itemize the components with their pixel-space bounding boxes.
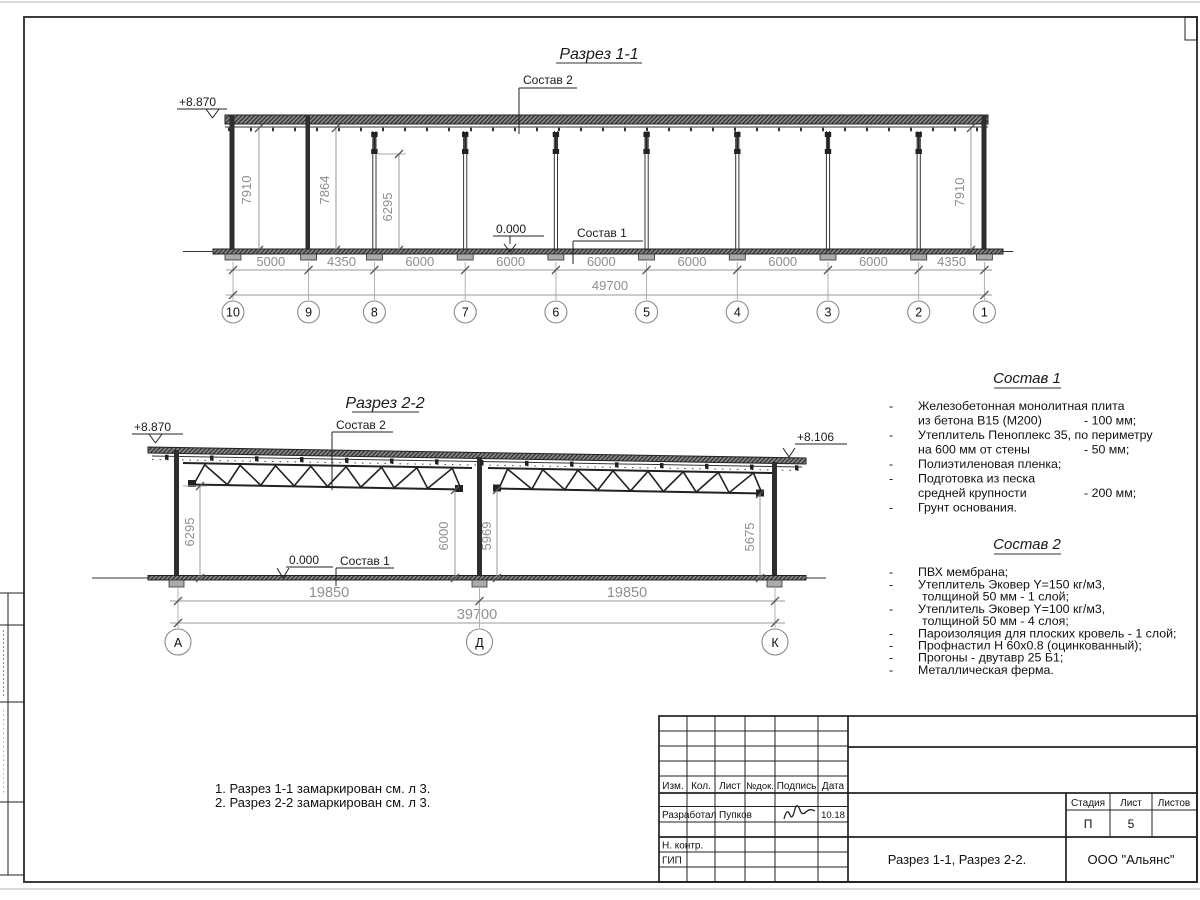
section1-zero-text: 0.000 <box>496 222 526 236</box>
stamp-date: 10.18 <box>821 810 845 821</box>
section1-sostav1-label: Состав 1 <box>577 226 627 240</box>
section2-axes: А Д К <box>165 629 788 655</box>
top-right-stamp-box <box>1185 17 1197 40</box>
stamp-company: ООО "Альянс" <box>1088 852 1175 867</box>
vdim2-6295: 6295 <box>182 518 197 547</box>
section2-zero-mark: 0.000 <box>277 553 333 578</box>
stamp-nkontr-label: Н. контр. <box>662 841 703 852</box>
list-dash: - <box>889 578 893 592</box>
composition-list-2: Состав 2 -ПВХ мембрана;-Утеплитель Экове… <box>889 536 1177 677</box>
list-dash: - <box>889 457 893 471</box>
dim-4350a: 4350 <box>327 254 356 269</box>
signature <box>784 806 815 819</box>
section-2-2: Разрез 2-2 <box>92 395 847 655</box>
vdim-7864: 7864 <box>317 176 332 205</box>
stamp-col-list: Лист <box>719 781 741 792</box>
section2-title: Разрез 2-2 <box>345 395 424 412</box>
list-line: из бетона В15 (М200) <box>918 414 1042 428</box>
axis-D: Д <box>475 636 484 650</box>
section2-elevation-right: +8.106 <box>783 430 847 457</box>
axis-4: 4 <box>734 306 741 320</box>
section2-elev-right-text: +8.106 <box>797 430 834 444</box>
list-dash: - <box>889 602 893 616</box>
section1-dim-chain: 5000 4350 6000 6000 6000 6000 6000 6000 … <box>226 254 992 295</box>
vdim-6295: 6295 <box>380 193 395 222</box>
stamp-gip-label: ГИП <box>662 856 682 867</box>
axis-2: 2 <box>915 306 922 320</box>
axis-K: К <box>771 636 779 650</box>
list-dash: - <box>889 663 893 677</box>
axis-10: 10 <box>226 306 240 320</box>
list-line: Утеплитель Пеноплекс 35, по периметру <box>918 428 1153 442</box>
note-1: 1. Разрез 1-1 замаркирован см. л 3. <box>215 781 430 796</box>
dim-6000c: 6000 <box>587 254 616 269</box>
axis-8: 8 <box>371 306 378 320</box>
section2-columns <box>174 450 777 580</box>
vdim2-5675: 5675 <box>742 523 757 552</box>
section1-elevation-text: +8.870 <box>179 95 216 109</box>
section1-sostav2-leader: Состав 2 <box>519 73 577 134</box>
section2-sostav1-label: Состав 1 <box>340 554 390 568</box>
stamp-sheet-value: 5 <box>1128 817 1135 831</box>
section1-title: Разрез 1-1 <box>559 46 638 63</box>
section1-elevation-mark: +8.870 <box>177 95 227 118</box>
axis-A: А <box>174 636 183 650</box>
left-margin-stamp <box>0 593 24 875</box>
stamp-col-ndok: №док. <box>746 781 774 792</box>
section2-zero-text: 0.000 <box>289 553 319 567</box>
stamp-stage-label: Стадия <box>1071 798 1105 809</box>
list-line: средней крупности <box>918 486 1027 500</box>
section-1-1: Разрез 1-1 +8.870 Состав <box>177 46 1013 323</box>
stamp-sheets-label: Листов <box>1158 798 1191 809</box>
stamp-col-kol: Кол. <box>691 781 711 792</box>
list-line: Грунт основания. <box>918 501 1017 515</box>
vdim2-6000: 6000 <box>436 522 451 551</box>
notes: 1. Разрез 1-1 замаркирован см. л 3. 2. Р… <box>215 781 430 810</box>
list-dash: - <box>889 399 893 413</box>
dim-49700: 49700 <box>592 278 628 293</box>
vdim-7910-right: 7910 <box>952 178 967 207</box>
axis-3: 3 <box>825 306 832 320</box>
list-line: Подготовка из песка <box>918 472 1035 486</box>
stamp-col-podpis: Подпись <box>777 781 817 792</box>
comp1-heading: Состав 1 <box>993 370 1061 387</box>
dim-19850b: 19850 <box>607 585 647 601</box>
section2-floor <box>92 576 826 588</box>
section1-axes: 10 9 8 7 6 5 4 3 2 1 <box>222 301 995 323</box>
axis-1: 1 <box>981 306 988 320</box>
note-2: 2. Разрез 2-2 замаркирован см. л 3. <box>215 795 430 810</box>
list-line: Железобетонная монолитная плита <box>918 399 1125 413</box>
title-block: Изм. Кол. Лист №док. Подпись Дата Разраб… <box>659 716 1197 882</box>
dim-4350b: 4350 <box>937 254 966 269</box>
list-value: - 100 мм; <box>1084 414 1136 428</box>
dim-5000: 5000 <box>256 254 285 269</box>
list-dash: - <box>889 428 893 442</box>
dim-39700: 39700 <box>457 607 497 623</box>
list-value: - 50 мм; <box>1084 443 1129 457</box>
dim-19850a: 19850 <box>309 585 349 601</box>
section1-roof <box>225 115 988 130</box>
section2-elevation-left: +8.870 <box>132 420 183 443</box>
stamp-col-izm: Изм. <box>662 781 683 792</box>
list-line: Металлическая ферма. <box>918 663 1054 677</box>
dim-6000b: 6000 <box>496 254 525 269</box>
section1-generated <box>225 124 992 300</box>
list-dash: - <box>889 501 893 515</box>
drawing-sheet: Разрез 1-1 +8.870 Состав <box>0 0 1200 900</box>
list-line: на 600 мм от стены <box>918 443 1030 457</box>
section1-sostav2-label: Состав 2 <box>523 73 573 87</box>
section2-sostav2-label: Состав 2 <box>336 418 386 432</box>
axis-9: 9 <box>305 306 312 320</box>
axis-5: 5 <box>643 306 650 320</box>
section1-zero-mark: 0.000 <box>493 222 544 252</box>
composition-list-1: Состав 1 -Железобетонная монолитная плит… <box>889 370 1153 515</box>
axis-7: 7 <box>462 306 469 320</box>
stamp-doc-title: Разрез 1-1, Разрез 2-2. <box>888 852 1026 867</box>
section2-vertical-dims: 6295 6000 5969 5675 <box>182 486 760 578</box>
section2-elev-left-text: +8.870 <box>134 420 171 434</box>
list-line: Полиэтиленовая пленка; <box>918 457 1061 471</box>
vdim2-5969: 5969 <box>479 522 494 551</box>
section2-dim-chain: 19850 19850 39700 <box>170 585 785 623</box>
drawing-canvas: Разрез 1-1 +8.870 Состав <box>0 0 1200 900</box>
stamp-stage-value: П <box>1084 817 1093 831</box>
stamp-col-data: Дата <box>822 781 845 792</box>
stamp-razrabotal-label: Разработал <box>662 809 717 821</box>
dim-6000a: 6000 <box>405 254 434 269</box>
comp2-heading: Состав 2 <box>993 536 1061 553</box>
axis-6: 6 <box>552 306 559 320</box>
vdim-7910-left: 7910 <box>239 176 254 205</box>
section2-sostav1-leader: Состав 1 <box>336 554 394 586</box>
dim-6000d: 6000 <box>678 254 707 269</box>
dim-6000f: 6000 <box>859 254 888 269</box>
stamp-sheet-label: Лист <box>1120 798 1142 809</box>
list-dash: - <box>889 472 893 486</box>
list-value: - 200 мм; <box>1084 486 1136 500</box>
dim-6000e: 6000 <box>768 254 797 269</box>
stamp-razrabotal-name: Пупков <box>719 810 752 821</box>
